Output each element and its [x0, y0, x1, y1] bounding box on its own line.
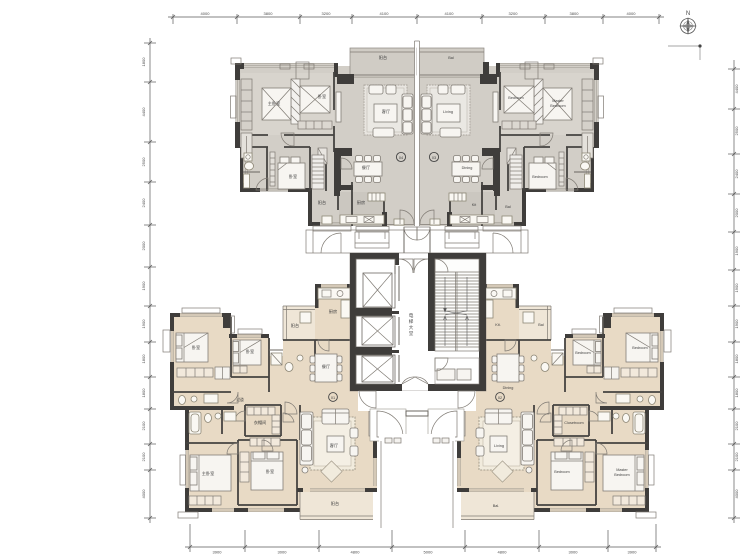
- svg-text:Dining: Dining: [503, 386, 514, 390]
- svg-text:阳台: 阳台: [379, 54, 387, 61]
- svg-text:餐厅: 餐厅: [362, 164, 370, 171]
- svg-text:1900: 1900: [141, 281, 146, 291]
- svg-text:电: 电: [409, 312, 414, 318]
- svg-text:04: 04: [399, 156, 403, 160]
- svg-text:Bedroom: Bedroom: [632, 346, 647, 350]
- svg-text:客厅: 客厅: [382, 108, 390, 115]
- svg-text:Bedroom: Bedroom: [554, 470, 569, 474]
- svg-text:厨房: 厨房: [357, 199, 365, 206]
- svg-text:Dining: Dining: [462, 166, 473, 170]
- svg-text:主卧室: 主卧室: [268, 100, 281, 107]
- svg-text:Master: Master: [552, 99, 564, 103]
- svg-text:餐厅: 餐厅: [322, 363, 330, 370]
- svg-text:1900: 1900: [734, 283, 739, 293]
- svg-text:3000: 3000: [569, 550, 579, 555]
- svg-text:卧室: 卧室: [266, 468, 274, 475]
- svg-text:3800: 3800: [570, 11, 580, 16]
- svg-text:2500: 2500: [141, 157, 146, 167]
- svg-text:4100: 4100: [380, 11, 390, 16]
- svg-text:2100: 2100: [734, 452, 739, 462]
- svg-text:5000: 5000: [424, 550, 434, 555]
- svg-text:2400: 2400: [734, 169, 739, 179]
- svg-text:Bedroom: Bedroom: [550, 104, 565, 108]
- svg-text:卧室: 卧室: [192, 344, 200, 351]
- svg-text:客厅: 客厅: [330, 442, 338, 449]
- svg-text:1800: 1800: [141, 57, 146, 67]
- svg-text:Living: Living: [494, 444, 504, 448]
- svg-text:1800: 1800: [141, 388, 146, 398]
- svg-text:2000: 2000: [734, 208, 739, 218]
- svg-text:1800: 1800: [141, 354, 146, 364]
- svg-text:1800: 1800: [734, 388, 739, 398]
- svg-text:厨房: 厨房: [329, 308, 337, 315]
- svg-text:阳台: 阳台: [331, 500, 339, 507]
- svg-text:主卧室: 主卧室: [202, 470, 215, 477]
- svg-text:卧室: 卧室: [289, 173, 297, 180]
- svg-text:Bal: Bal: [448, 56, 454, 60]
- svg-text:4800: 4800: [498, 550, 508, 555]
- svg-text:Bal.: Bal.: [493, 504, 500, 508]
- svg-text:3200: 3200: [509, 11, 519, 16]
- svg-text:2100: 2100: [141, 421, 146, 431]
- svg-text:02: 02: [498, 396, 502, 400]
- svg-text:Master: Master: [616, 468, 628, 472]
- svg-text:堂: 堂: [409, 330, 414, 336]
- svg-text:Closetroom: Closetroom: [564, 421, 583, 425]
- svg-text:Bedroom: Bedroom: [508, 96, 523, 100]
- svg-text:4800: 4800: [351, 550, 361, 555]
- svg-text:大: 大: [409, 324, 414, 331]
- svg-text:N: N: [686, 11, 690, 17]
- svg-text:衣帽间: 衣帽间: [254, 419, 267, 426]
- svg-text:Bedroom: Bedroom: [532, 175, 547, 179]
- svg-text:3900: 3900: [628, 550, 638, 555]
- svg-text:4000: 4000: [627, 11, 637, 16]
- svg-text:03: 03: [432, 156, 436, 160]
- svg-text:Bedroom: Bedroom: [575, 351, 590, 355]
- svg-text:1900: 1900: [734, 246, 739, 256]
- svg-text:3000: 3000: [278, 550, 288, 555]
- svg-text:2100: 2100: [141, 452, 146, 462]
- svg-text:2500: 2500: [734, 126, 739, 136]
- svg-text:4000: 4000: [201, 11, 211, 16]
- svg-text:阳台: 阳台: [318, 199, 326, 206]
- svg-text:3200: 3200: [322, 11, 332, 16]
- svg-text:3800: 3800: [264, 11, 274, 16]
- svg-text:Bal: Bal: [505, 205, 511, 209]
- svg-text:过道: 过道: [236, 397, 244, 402]
- svg-text:4000: 4000: [734, 489, 739, 499]
- svg-text:卧室: 卧室: [246, 348, 254, 355]
- svg-text:卧室: 卧室: [318, 93, 326, 100]
- svg-text:4000: 4000: [141, 489, 146, 499]
- svg-text:1800: 1800: [734, 354, 739, 364]
- svg-text:4400: 4400: [141, 107, 146, 117]
- svg-text:梯: 梯: [409, 318, 414, 325]
- svg-text:阳台: 阳台: [291, 322, 299, 329]
- svg-text:2000: 2000: [141, 241, 146, 251]
- svg-text:Bal: Bal: [538, 323, 544, 327]
- svg-text:Bedroom: Bedroom: [614, 473, 629, 477]
- svg-text:Kit.: Kit.: [495, 323, 501, 327]
- svg-text:4400: 4400: [734, 84, 739, 94]
- svg-text:4100: 4100: [445, 11, 455, 16]
- svg-text:2400: 2400: [141, 198, 146, 208]
- svg-text:1900: 1900: [141, 319, 146, 329]
- svg-text:3900: 3900: [213, 550, 223, 555]
- svg-text:2100: 2100: [734, 421, 739, 431]
- svg-text:Living: Living: [443, 110, 453, 114]
- svg-text:01: 01: [331, 396, 335, 400]
- svg-text:1900: 1900: [734, 319, 739, 329]
